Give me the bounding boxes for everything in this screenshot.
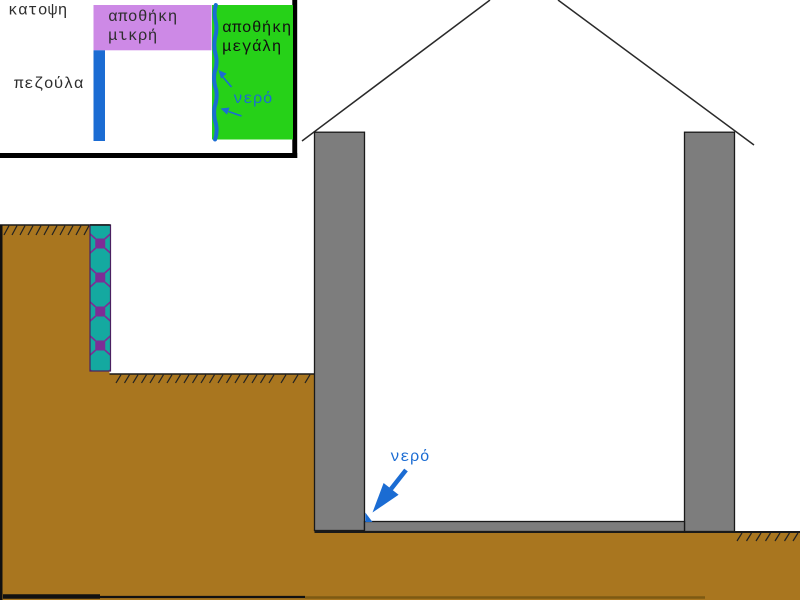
svg-text:αποθήκη: αποθήκη — [108, 8, 178, 26]
svg-text:νερό: νερό — [233, 90, 273, 108]
svg-text:μικρή: μικρή — [108, 27, 158, 45]
svg-text:μεγάλη: μεγάλη — [222, 38, 282, 56]
svg-text:πεζούλα: πεζούλα — [14, 75, 84, 93]
svg-text:νερό: νερό — [390, 448, 430, 466]
svg-text:αποθήκη: αποθήκη — [222, 19, 292, 37]
svg-text:κατοψη: κατοψη — [8, 2, 68, 20]
